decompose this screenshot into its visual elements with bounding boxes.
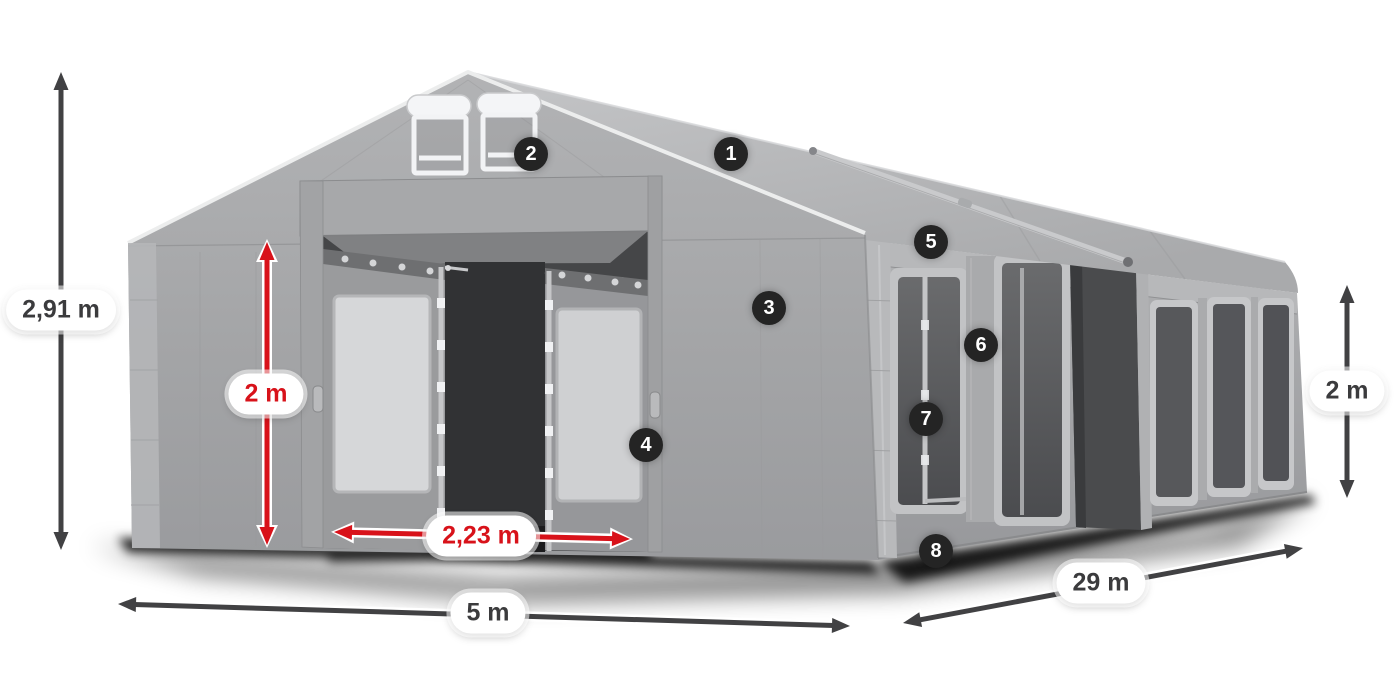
entrance — [300, 176, 662, 552]
tent-illustration — [0, 0, 1400, 700]
entrance-door-right — [545, 268, 648, 552]
diagram-stage: 2,91 m2 m2,23 m5 m29 m2 m 12345678 — [0, 0, 1400, 700]
entrance-door-left — [323, 249, 445, 550]
